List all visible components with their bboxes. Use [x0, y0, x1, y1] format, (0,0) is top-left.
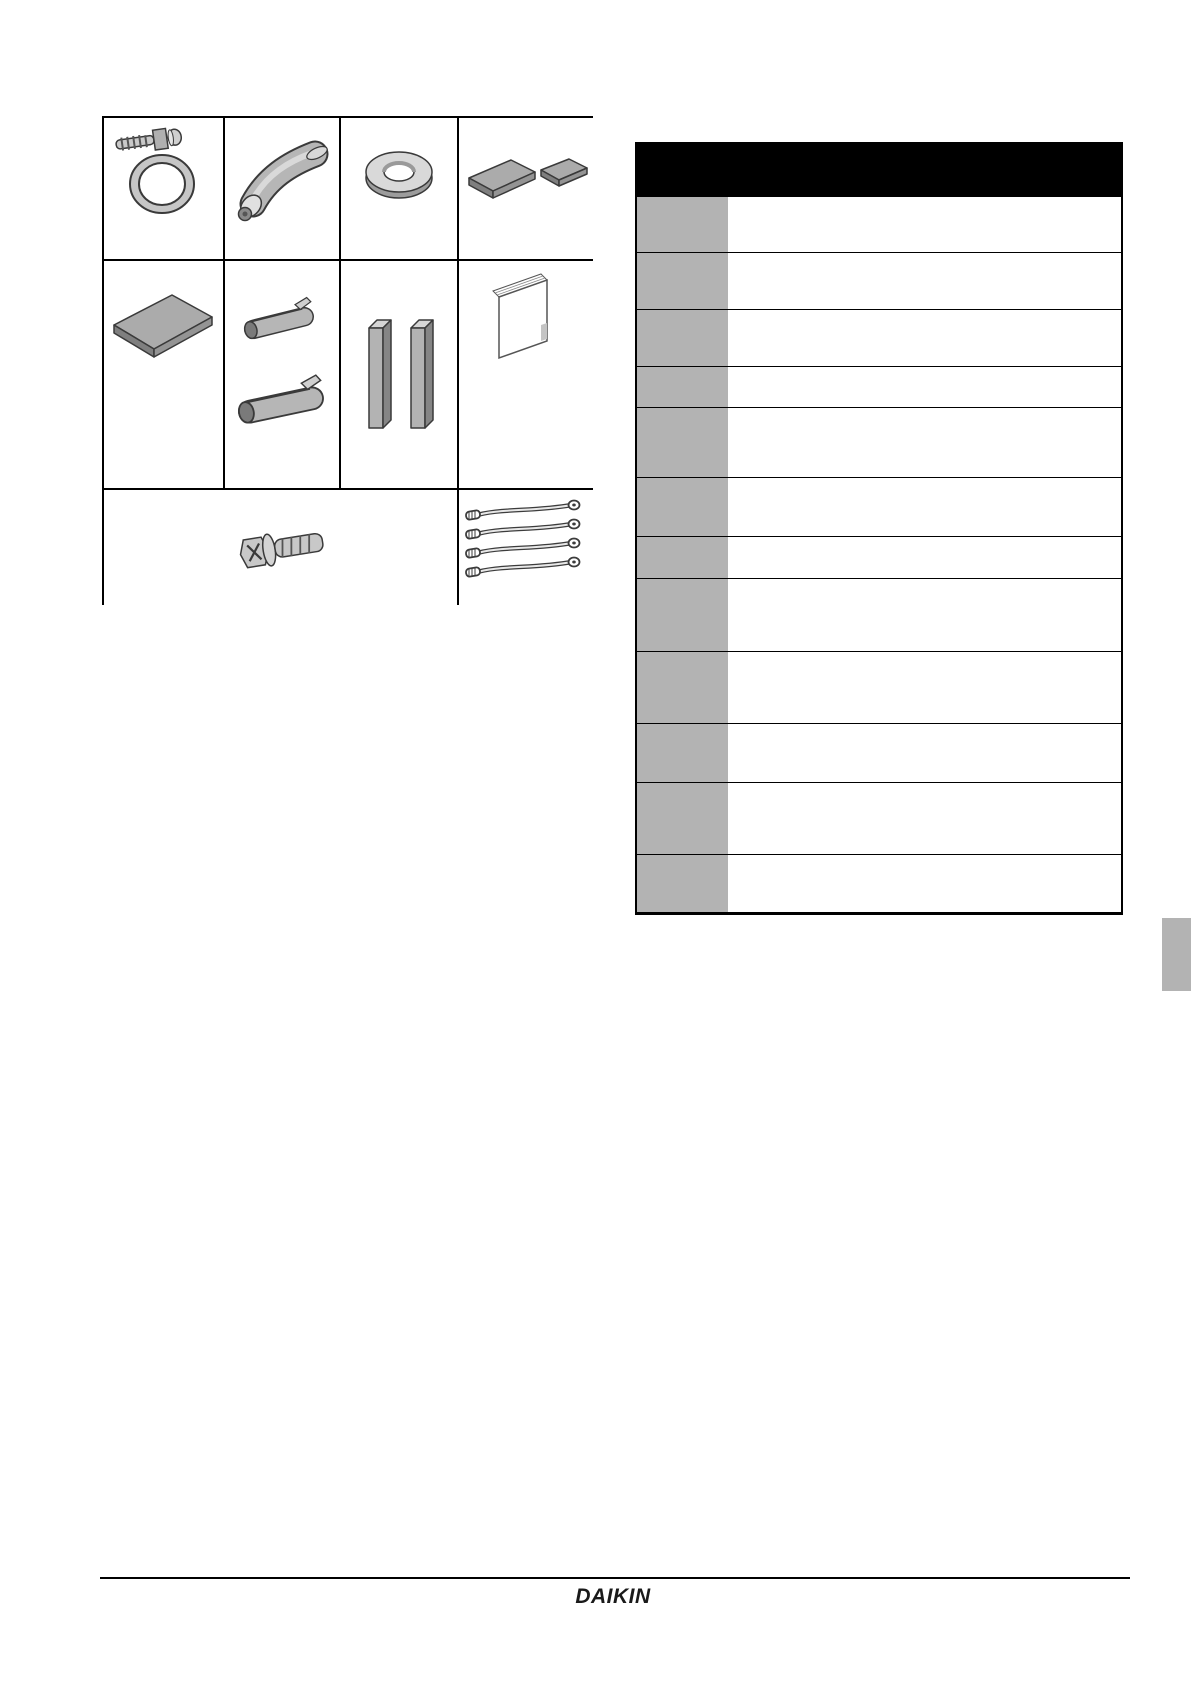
grid-cell-insulation-sheet	[104, 261, 225, 490]
part-description-cell	[728, 367, 1121, 407]
part-code-cell	[637, 724, 728, 782]
part-code-cell	[637, 652, 728, 723]
cable-tie	[465, 501, 579, 521]
grid-cell-flange-screw	[104, 490, 459, 605]
foam-bars-icon	[345, 310, 453, 440]
part-code-cell	[637, 478, 728, 536]
grid-cell-cable-ties	[459, 490, 593, 605]
flange-screw-icon	[104, 492, 457, 603]
part-description-cell	[728, 724, 1121, 782]
part-description-cell	[728, 652, 1121, 723]
table-row	[637, 408, 1121, 478]
table-row	[637, 478, 1121, 537]
sealing-pads-icon	[463, 140, 589, 210]
pipe-insulation-clips-icon	[229, 287, 335, 455]
small-clip	[241, 297, 316, 340]
parts-table-header	[637, 142, 1121, 197]
part-description-cell	[728, 408, 1121, 477]
accessories-grid	[102, 116, 593, 605]
washer-icon	[349, 136, 449, 212]
table-row	[637, 253, 1121, 310]
grid-cell-foam-bars	[341, 261, 459, 490]
part-description-cell	[728, 579, 1121, 651]
cable-tie	[465, 520, 579, 540]
part-code-cell	[637, 253, 728, 309]
daikin-logo: DAIKIN	[563, 1586, 663, 1608]
part-code-cell	[637, 367, 728, 407]
table-row	[637, 537, 1121, 579]
cable-ties-icon	[460, 490, 592, 601]
insulation-tube-icon	[229, 132, 335, 224]
part-code-cell	[637, 197, 728, 252]
installation-manual-icon	[471, 273, 581, 365]
document-page: DAIKIN	[0, 0, 1191, 1684]
part-description-cell	[728, 310, 1121, 366]
large-clip	[235, 374, 327, 424]
table-row	[637, 367, 1121, 408]
parts-table	[635, 142, 1123, 915]
grid-cell-pipe-insulation-clips	[225, 261, 341, 490]
table-row	[637, 855, 1121, 912]
cable-tie	[465, 539, 579, 559]
clamp-screw	[114, 126, 182, 155]
hose-clamp-icon	[112, 124, 216, 224]
table-row	[637, 310, 1121, 367]
cable-tie	[465, 558, 579, 578]
part-code-cell	[637, 408, 728, 477]
grid-cell-hose-clamp	[104, 118, 225, 261]
grid-cell-installation-manual	[459, 261, 593, 490]
table-row	[637, 652, 1121, 724]
part-code-cell	[637, 537, 728, 578]
grid-cell-sealing-pads	[459, 118, 593, 261]
footer-divider	[100, 1577, 1130, 1579]
table-row	[637, 197, 1121, 253]
part-description-cell	[728, 478, 1121, 536]
part-description-cell	[728, 537, 1121, 578]
part-description-cell	[728, 783, 1121, 854]
insulation-sheet-icon	[108, 277, 219, 377]
part-code-cell	[637, 783, 728, 854]
table-row	[637, 783, 1121, 855]
part-description-cell	[728, 197, 1121, 252]
grid-cell-insulation-tube	[225, 118, 341, 261]
table-row	[637, 724, 1121, 783]
table-row	[637, 579, 1121, 652]
part-code-cell	[637, 579, 728, 651]
grid-cell-washer	[341, 118, 459, 261]
part-description-cell	[728, 253, 1121, 309]
part-code-cell	[637, 310, 728, 366]
part-description-cell	[728, 855, 1121, 912]
section-tab	[1162, 918, 1191, 991]
part-code-cell	[637, 855, 728, 912]
